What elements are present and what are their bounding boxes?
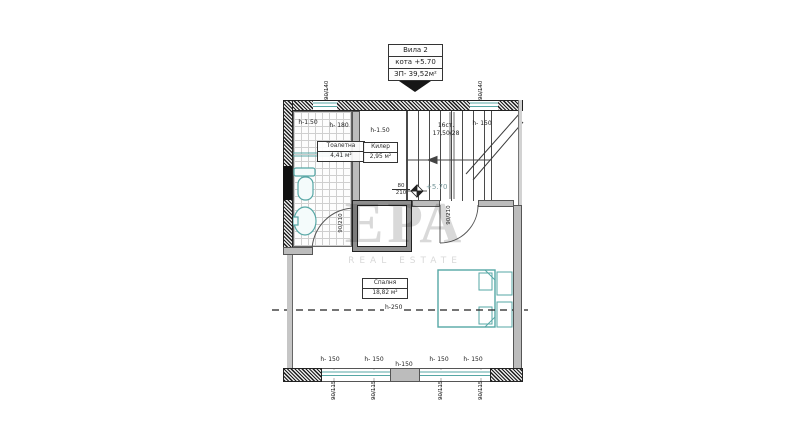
window-left-block xyxy=(283,166,292,200)
bathroom-area: 4,41 м² xyxy=(318,152,364,161)
sill-bottom-3: h-150 xyxy=(390,361,418,368)
wall-bathroom-bottom xyxy=(283,247,313,255)
wall-hall-left xyxy=(412,200,440,207)
bedroom-label: Спалня 18,82 м² xyxy=(362,278,408,299)
window-dim-bottom-1: 90/115 xyxy=(331,382,337,400)
hall-door-size: 90/210 xyxy=(446,204,452,226)
wall-left-lower xyxy=(287,253,293,370)
closet-area: 2,95 м² xyxy=(364,153,397,162)
window-bottom-right xyxy=(420,370,490,378)
closet-room xyxy=(352,200,412,252)
stairs-dims-label: 17,50/28 xyxy=(422,130,470,137)
wall-bottom-center xyxy=(390,368,420,382)
window-dim-bottom-3: 90/115 xyxy=(438,382,444,400)
sill-bottom-2: h- 150 xyxy=(360,356,388,363)
level-marker-icon xyxy=(408,185,427,197)
level-marker-value: +5.70 xyxy=(426,183,447,191)
stairs-steps-label: 16ст. xyxy=(426,122,466,129)
sill-bottom-1: h- 150 xyxy=(316,356,344,363)
sill-top-2: h- 180 xyxy=(325,122,353,129)
window-dim-bottom-2: 90/115 xyxy=(371,382,377,400)
title-pointer-icon xyxy=(399,81,431,92)
bed-icon xyxy=(438,270,512,327)
window-top-right xyxy=(470,101,498,110)
bedroom-name: Спалня xyxy=(363,279,407,289)
closet-interior xyxy=(357,205,407,247)
sill-bottom-5: h- 150 xyxy=(459,356,487,363)
wall-right-upper xyxy=(518,100,522,205)
closet-label: Килер 2,95 м² xyxy=(363,142,398,163)
bathroom-door-arc xyxy=(312,208,355,251)
window-bottom-left xyxy=(322,370,390,378)
sink-icon xyxy=(293,207,316,235)
title-area: ЗП- 39,52м² xyxy=(389,69,442,80)
sill-top-3: h-1.50 xyxy=(366,127,394,134)
closet-name: Килер xyxy=(364,143,397,153)
bedroom-area: 18,82 м² xyxy=(363,289,407,298)
sill-top-1: h-1.50 xyxy=(294,119,322,126)
floorplan-page: Вила 2 кота +5.70 ЗП- 39,52м² Тоалетна 4… xyxy=(0,0,800,432)
bath-door-size: 80 210 xyxy=(392,183,410,196)
toilet-icon xyxy=(294,168,315,200)
title-block: Вила 2 кота +5.70 ЗП- 39,52м² xyxy=(388,44,443,81)
wall-right-lower xyxy=(513,205,522,372)
bath-door-side-size: 90/210 xyxy=(338,212,344,234)
bath-door-width: 80 xyxy=(392,183,410,190)
title-elevation: кота +5.70 xyxy=(389,57,442,69)
sill-top-4: h- 150 xyxy=(468,120,496,127)
window-dim-top-1: 90/140 xyxy=(324,82,330,100)
sill-bottom-4: h- 150 xyxy=(425,356,453,363)
window-dim-top-2: 90/140 xyxy=(478,82,484,100)
bathroom-label: Тоалетна 4,41 м² xyxy=(317,141,365,162)
title-villa: Вила 2 xyxy=(389,45,442,57)
wall-bottom-right xyxy=(490,368,523,382)
bathroom-name: Тоалетна xyxy=(318,142,364,152)
wall-bottom-left xyxy=(283,368,322,382)
wall-hall-right xyxy=(478,200,514,207)
bath-door-height: 210 xyxy=(396,190,407,196)
section-height-label: h-250 xyxy=(384,304,403,311)
window-dim-bottom-4: 90/115 xyxy=(478,382,484,400)
window-top-left xyxy=(313,101,337,110)
